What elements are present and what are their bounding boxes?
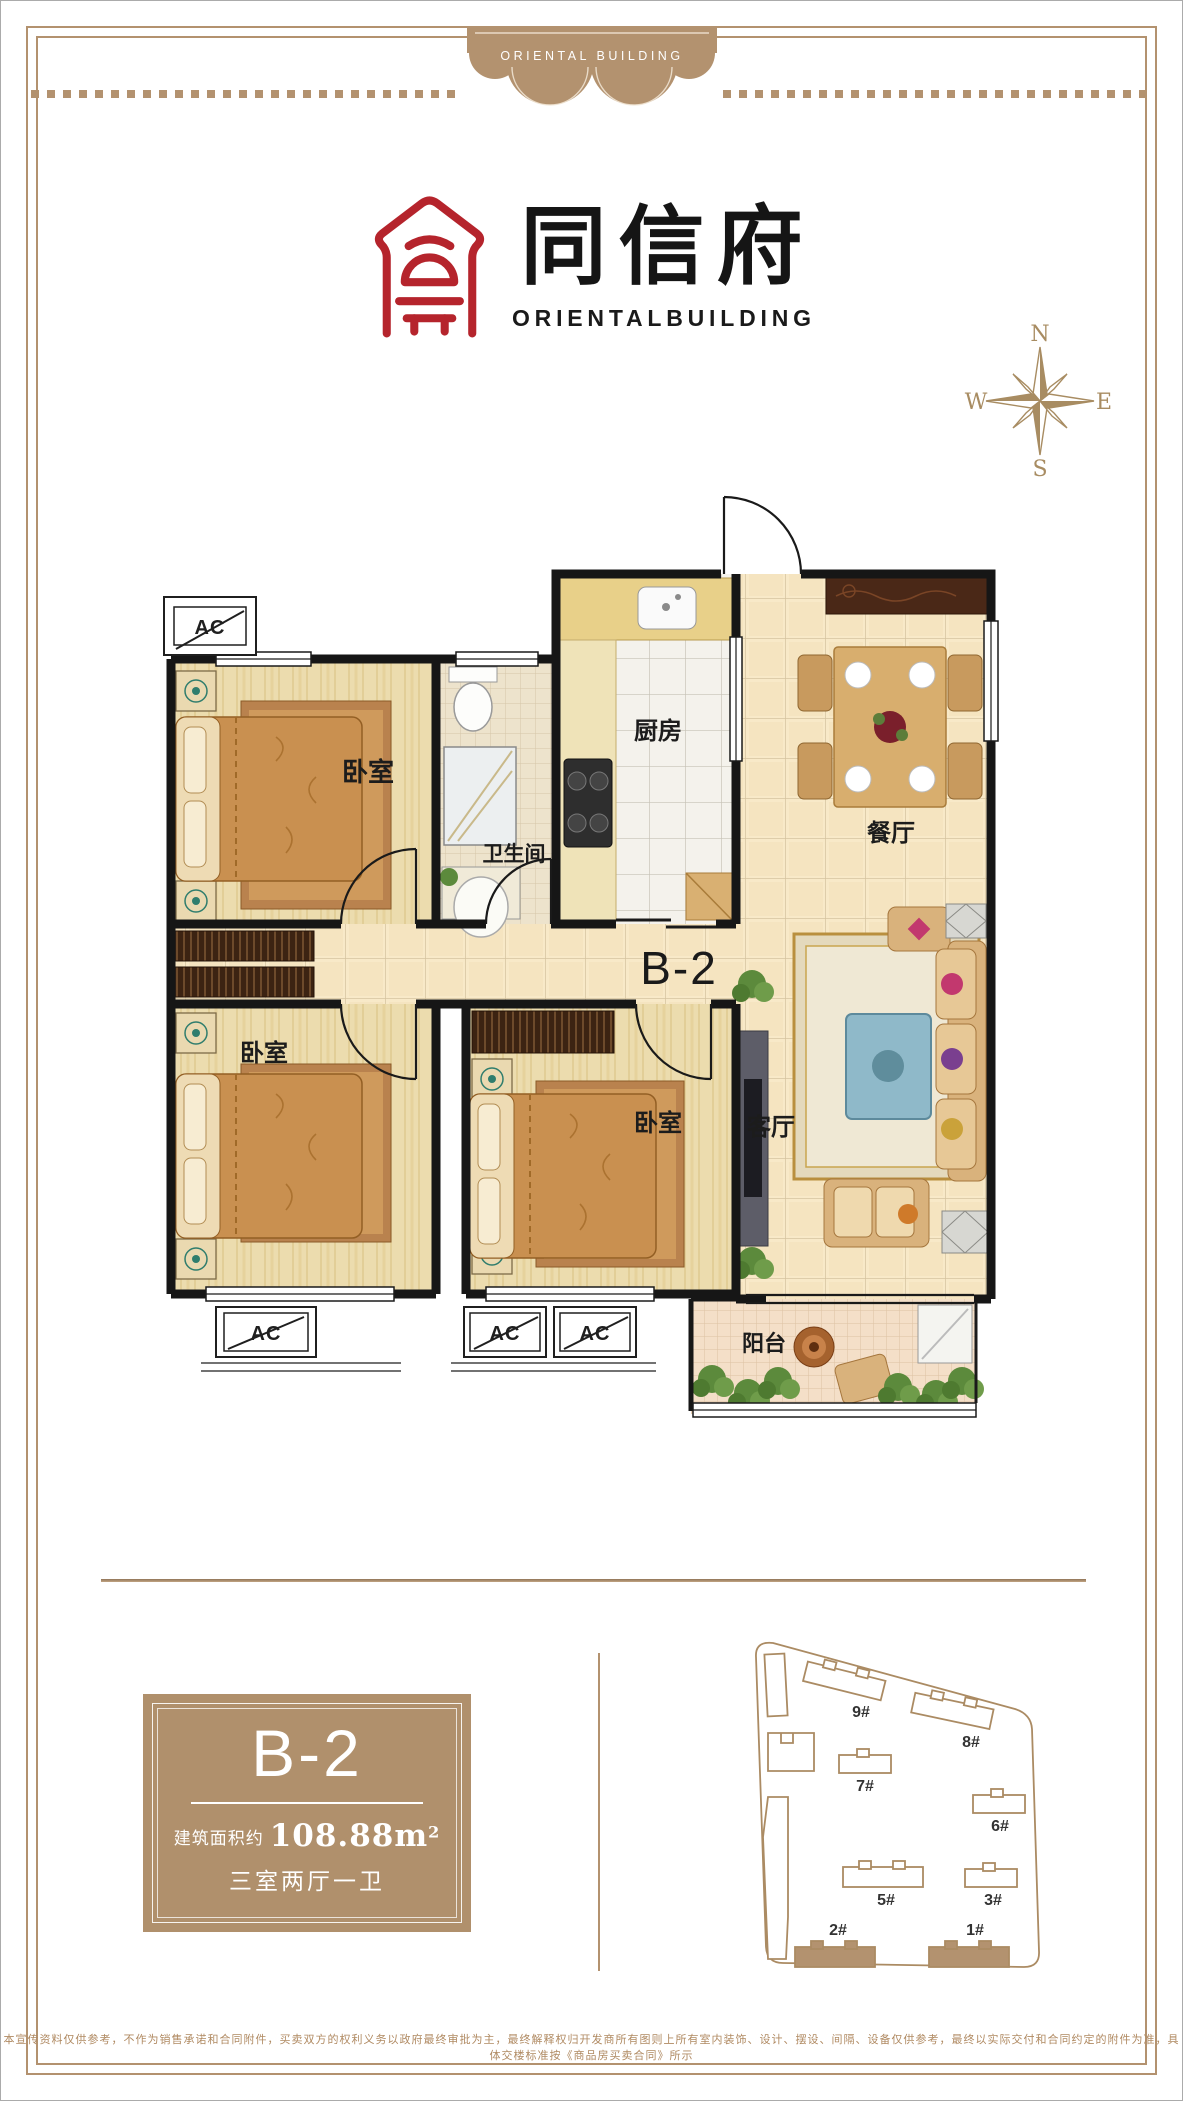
- kitchen-label: 厨房: [634, 717, 682, 745]
- building-1-label: 1#: [966, 1922, 984, 1939]
- building-3: [965, 1863, 1017, 1887]
- bathroom-label: 卫生间: [483, 842, 546, 866]
- unit-layout: 三室两厅一卫: [143, 1862, 471, 1896]
- building-6-label: 6#: [991, 1818, 1009, 1835]
- compass-west-label: W: [965, 390, 988, 415]
- dining-furniture: [798, 578, 991, 807]
- area-prefix: 建筑面积约: [174, 1829, 264, 1848]
- area-superscript: 2: [428, 1822, 440, 1841]
- building-5: [843, 1861, 923, 1887]
- dotted-divider-right: [723, 90, 1153, 98]
- window-sills: [201, 1363, 656, 1371]
- unit-area: 建筑面积约108.88m2: [143, 1818, 471, 1854]
- compass-south-label: S: [1032, 457, 1047, 481]
- unit-name: B-2: [143, 1720, 471, 1786]
- building-8-label: 8#: [962, 1734, 980, 1751]
- banner-text: ORIENTAL BUILDING: [500, 49, 683, 63]
- compass-east-label: E: [1096, 390, 1112, 415]
- horizontal-divider: [101, 1579, 1086, 1582]
- bedroom1-furniture: [176, 671, 391, 921]
- compass-north-label: N: [1030, 323, 1049, 347]
- top-banner: ORIENTAL BUILDING: [467, 27, 717, 111]
- siteplan-existing-buildings: [763, 1654, 814, 1959]
- building-3-label: 3#: [984, 1892, 1002, 1909]
- living-label: 客厅: [747, 1113, 795, 1141]
- card-divider-line: [191, 1802, 423, 1804]
- unit-label-on-plan: B-2: [640, 942, 718, 994]
- ac-box-topleft: AC: [164, 597, 256, 655]
- siteplan: 9# 8# 7# 6# 5# 3# 2# 1#: [743, 1629, 1083, 2019]
- bedroom2-label: 卧室: [240, 1039, 288, 1067]
- dining-label: 餐厅: [867, 820, 915, 847]
- area-value: 108.88m: [270, 1818, 428, 1854]
- siteplan-drawing: 9# 8# 7# 6# 5# 3# 2# 1#: [743, 1629, 1083, 2014]
- ac-box-bottom3: AC: [554, 1307, 636, 1357]
- compass-rose: N E S W: [964, 323, 1116, 486]
- logo-seal-icon: [372, 193, 486, 339]
- brand-title: 同信府: [520, 200, 814, 295]
- dotted-divider-left: [31, 90, 463, 98]
- balcony-label: 阳台: [742, 1331, 786, 1356]
- building-5-label: 5#: [877, 1892, 895, 1909]
- building-2: [795, 1941, 875, 1967]
- brand-subtitle: ORIENTALBUILDING: [512, 305, 816, 332]
- building-7-label: 7#: [856, 1778, 874, 1795]
- ac-box-bottom2: AC: [464, 1307, 546, 1357]
- bedroom3-label: 卧室: [634, 1109, 682, 1137]
- bedroom1-label: 卧室: [342, 757, 394, 787]
- unit-info-card: B-2 建筑面积约108.88m2 三室两厅一卫: [143, 1694, 471, 1932]
- building-6: [973, 1789, 1025, 1813]
- building-2-label: 2#: [829, 1922, 847, 1939]
- brand-text: 同信府 ORIENTALBUILDING: [512, 200, 811, 332]
- building-1: [929, 1941, 1009, 1967]
- poster-page: ORIENTAL BUILDING 同信府 ORIENTALBUILDING: [0, 0, 1183, 2101]
- compass-star-icon: N E S W: [964, 323, 1116, 481]
- floorplan-drawing: AC AC AC AC 卧室 卫生: [146, 479, 1006, 1444]
- ac-box-bottom1: AC: [216, 1307, 316, 1357]
- vertical-divider: [598, 1653, 600, 1971]
- brand-block: 同信府 ORIENTALBUILDING: [372, 193, 811, 339]
- building-7: [839, 1749, 891, 1773]
- building-9-label: 9#: [852, 1704, 870, 1721]
- disclaimer-text: 本宣传资料仅供参考，不作为销售承诺和合同附件，买卖双方的权利义务以政府最终审批为…: [1, 2031, 1182, 2063]
- building-8: [911, 1687, 995, 1729]
- banner-cloud-icon: ORIENTAL BUILDING: [467, 27, 717, 111]
- floorplan: AC AC AC AC 卧室 卫生: [146, 479, 1006, 1449]
